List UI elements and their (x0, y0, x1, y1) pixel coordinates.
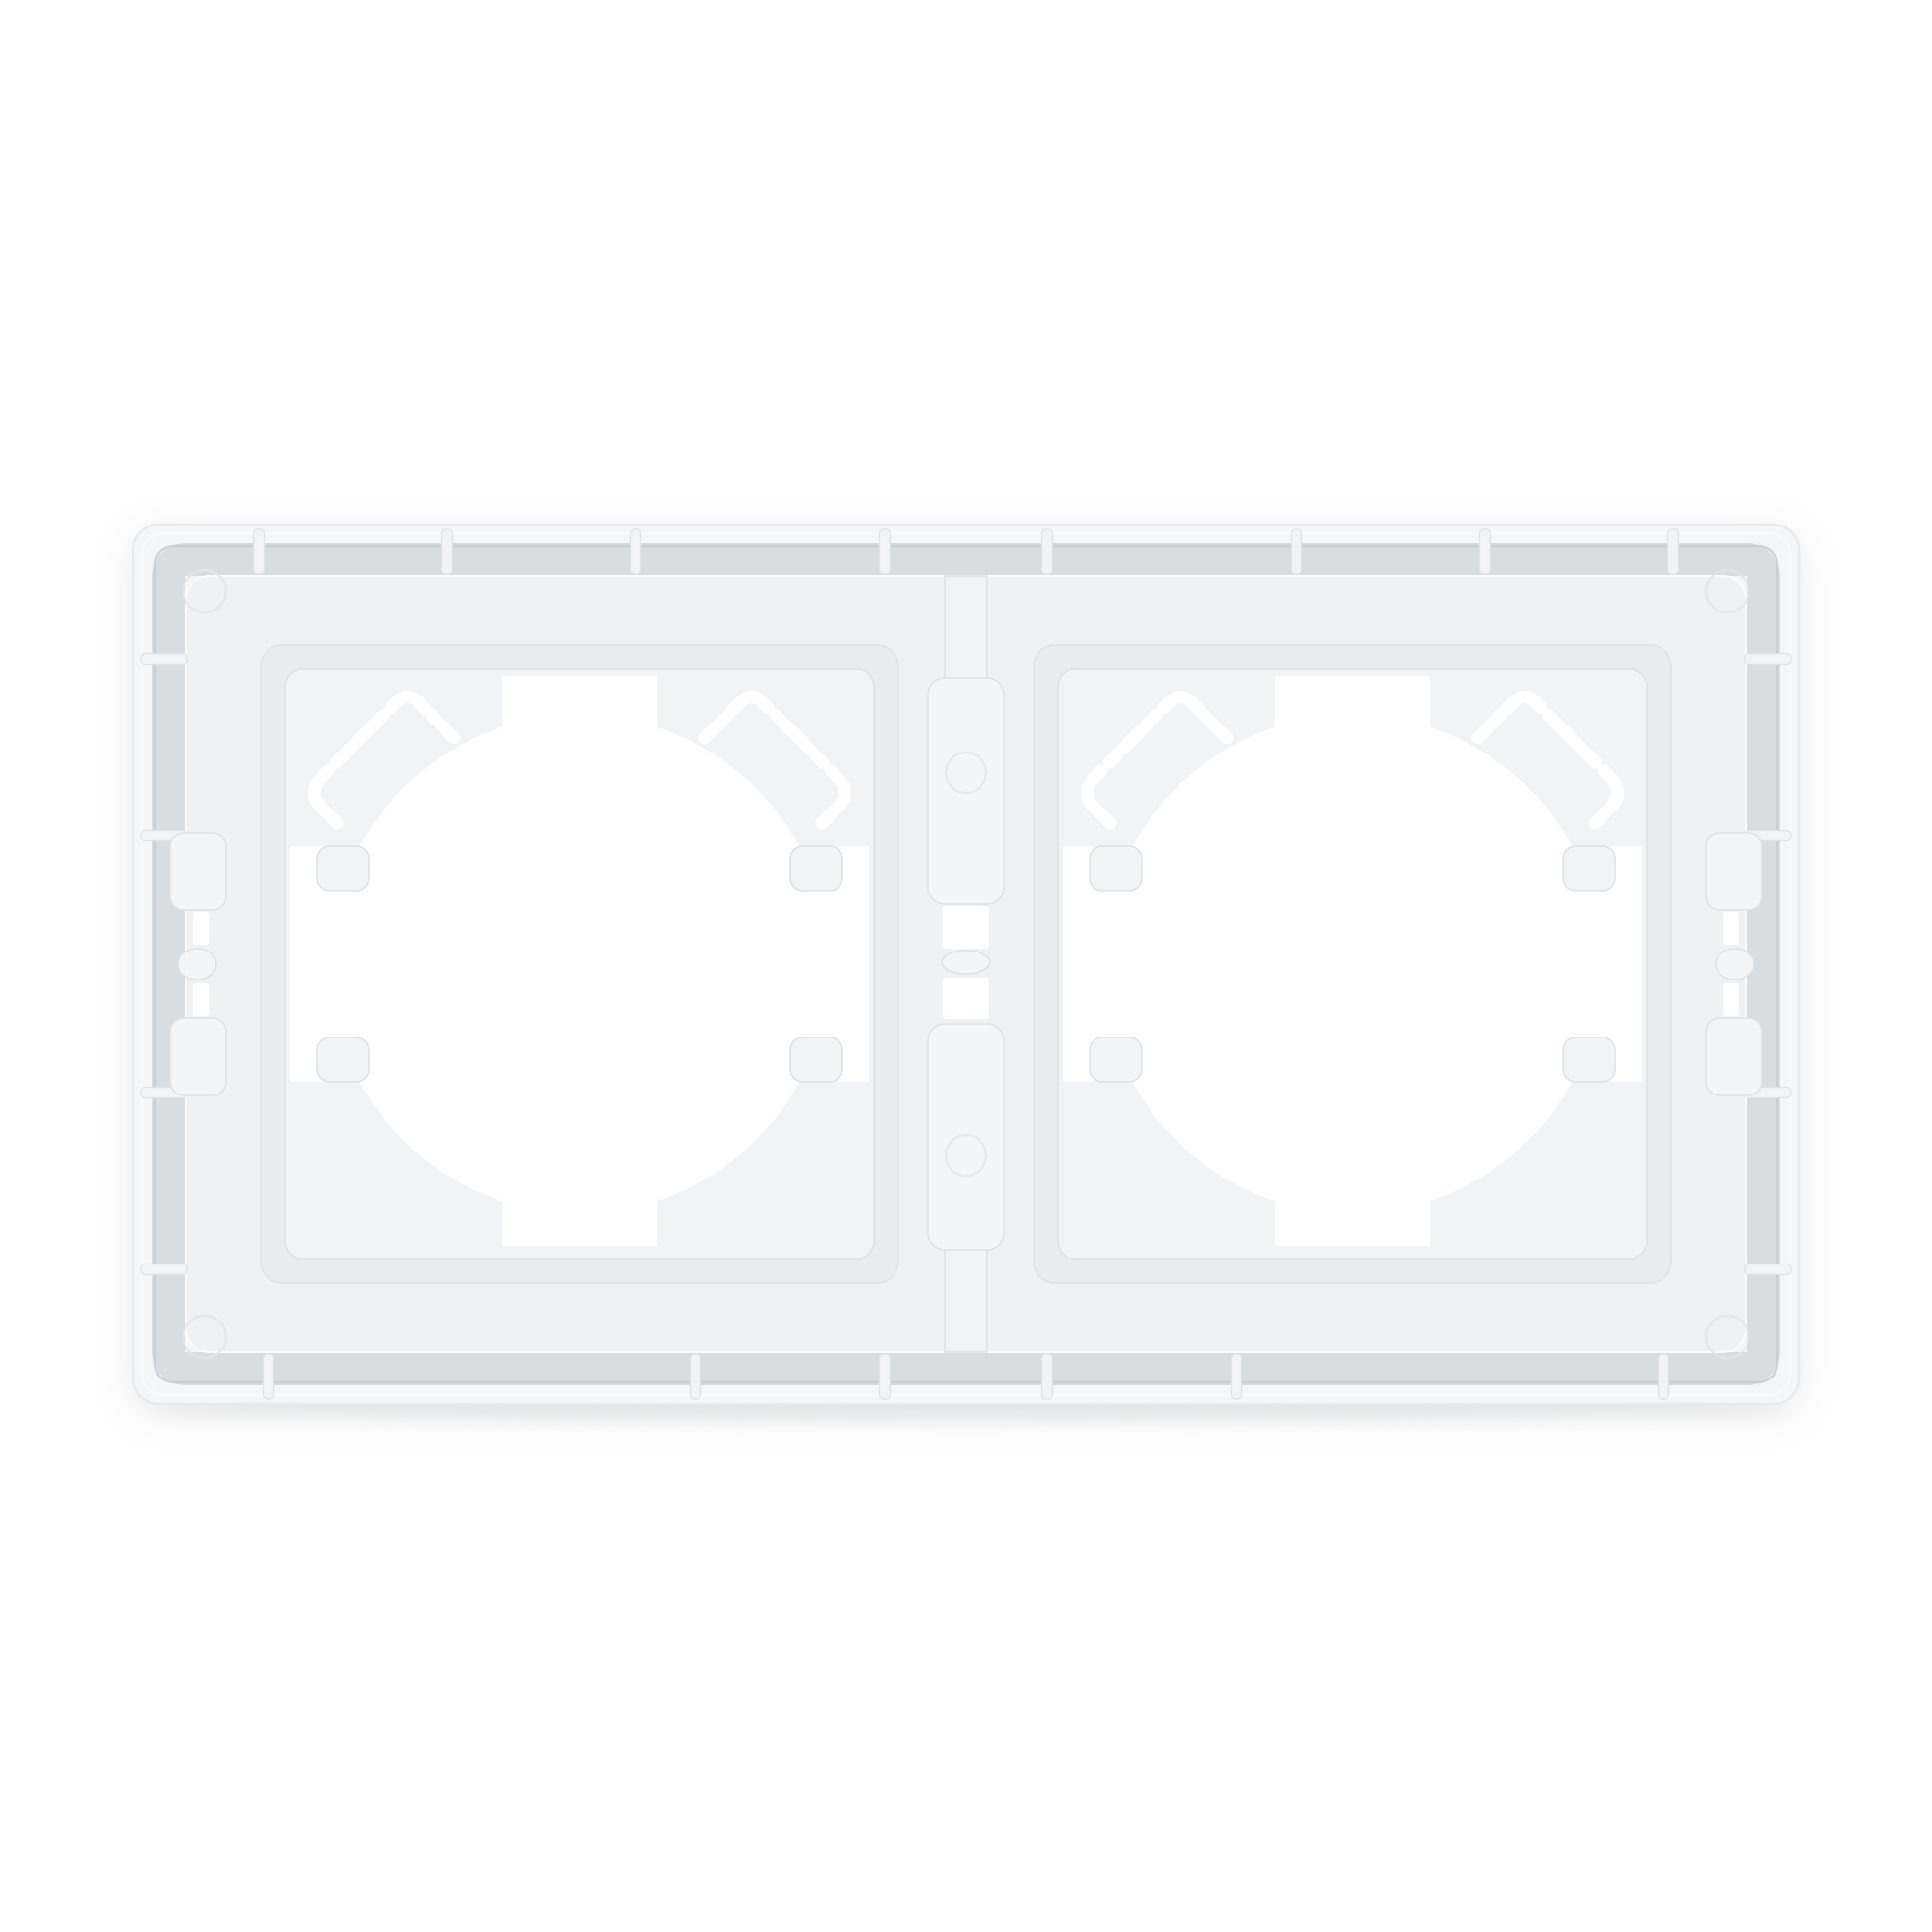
side-pin (1745, 1264, 1791, 1275)
snap-rib (264, 1354, 274, 1399)
frame-back-illustration: Rear view of a white plastic two-gang wa… (0, 0, 1932, 1932)
snap-rib (1668, 529, 1679, 574)
snap-rib (880, 1354, 891, 1399)
snap-rib (254, 529, 265, 574)
latch-tab-top (170, 833, 226, 910)
latch-slot (193, 983, 209, 1016)
divider-hole-bottom (943, 978, 989, 1019)
side-pin (1745, 654, 1791, 665)
divider-tab-bottom (928, 1024, 1004, 1250)
product-photo: Rear view of a white plastic two-gang wa… (0, 0, 1932, 1932)
snap-rib (1232, 1354, 1242, 1399)
snap-rib (631, 529, 641, 574)
gang-left (261, 645, 898, 1283)
snap-rib (1042, 1354, 1053, 1399)
divider-hole-top (943, 906, 989, 949)
side-pin (141, 1264, 187, 1275)
latch-stud (1716, 949, 1754, 980)
latch-stud (178, 949, 216, 980)
frame-back-plate (133, 525, 1799, 1404)
latch-tab-top (1706, 833, 1762, 910)
snap-rib (1292, 529, 1302, 574)
latch-slot (1723, 983, 1739, 1016)
divider-stud (942, 951, 990, 974)
divider-stem-top (945, 576, 987, 690)
snap-rib (691, 1354, 701, 1399)
latch-tab-bottom (170, 1018, 226, 1095)
divider-tab-top (928, 678, 1004, 904)
snap-rib (1480, 529, 1491, 574)
divider-stem-bottom (945, 1242, 987, 1352)
latch-slot (1723, 912, 1739, 945)
snap-rib (442, 529, 453, 574)
latch-tab-bottom (1706, 1018, 1762, 1095)
gang-right (1034, 645, 1671, 1283)
snap-rib (1042, 529, 1053, 574)
side-pin (141, 654, 187, 665)
snap-rib (1659, 1354, 1669, 1399)
snap-rib (880, 529, 891, 574)
latch-slot (193, 912, 209, 945)
